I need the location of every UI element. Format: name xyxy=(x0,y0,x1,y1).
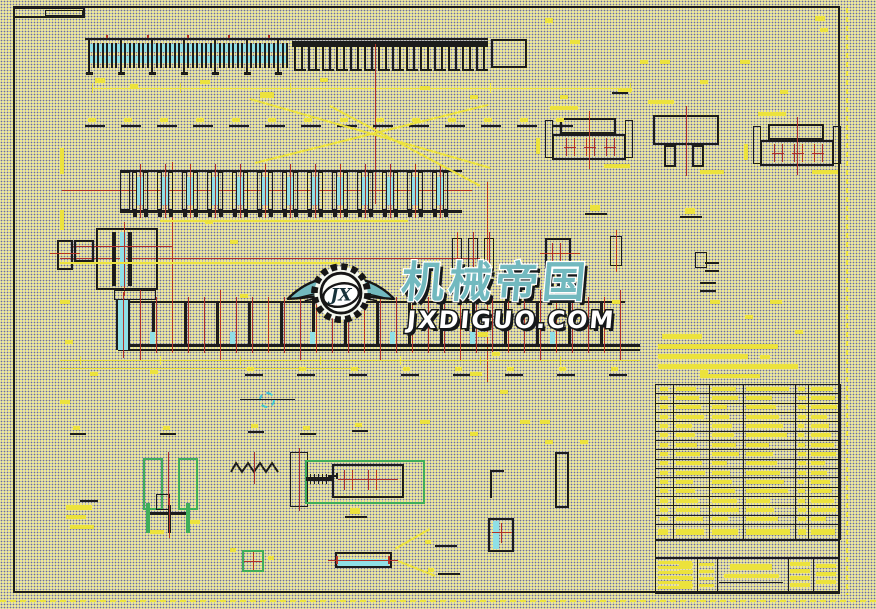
line xyxy=(233,213,237,217)
dimension-mark xyxy=(790,576,810,580)
dimension-mark xyxy=(724,574,779,578)
line xyxy=(436,69,446,71)
line xyxy=(338,69,348,71)
shape xyxy=(695,252,707,268)
title-block-text xyxy=(658,566,692,569)
top-strip-roller xyxy=(156,43,158,68)
top-strip-roller xyxy=(147,43,149,68)
section-dash xyxy=(245,374,263,376)
section-dash xyxy=(481,125,501,127)
table-cell-text xyxy=(676,517,703,521)
dimension-mark xyxy=(580,440,588,444)
top-strip-roller xyxy=(315,47,317,71)
roller xyxy=(293,172,298,210)
top-strip-roller xyxy=(133,43,135,68)
line xyxy=(169,213,173,217)
dimension-mark xyxy=(611,367,618,371)
table-grid xyxy=(655,440,840,441)
table-cell-text xyxy=(712,405,727,409)
shape xyxy=(57,240,73,270)
dimension-mark xyxy=(60,400,70,404)
section-dash xyxy=(409,125,429,127)
table-cell-text xyxy=(660,489,668,493)
centerline xyxy=(604,147,616,148)
line xyxy=(705,262,719,264)
centerline xyxy=(388,556,390,564)
section-dash xyxy=(349,374,367,376)
dimension-mark xyxy=(60,148,64,174)
top-strip-roller xyxy=(441,47,443,71)
roller xyxy=(318,172,323,210)
centerline xyxy=(812,153,824,154)
dimension-mark xyxy=(520,420,530,424)
top-strip-roller xyxy=(241,43,243,68)
line xyxy=(310,474,311,484)
table-cell-text xyxy=(798,480,804,484)
dimension-mark xyxy=(230,240,238,244)
top-strip-roller xyxy=(178,43,180,68)
section-dash xyxy=(373,125,393,127)
table-grid xyxy=(795,384,796,540)
dimension-mark xyxy=(745,315,753,319)
line xyxy=(795,524,796,540)
section-dash xyxy=(352,430,368,432)
line xyxy=(294,213,298,217)
top-strip-roller xyxy=(259,43,261,68)
left-drive-assembly xyxy=(96,228,158,290)
top-strip-roller xyxy=(448,47,450,71)
table-cell-text xyxy=(676,471,705,475)
line xyxy=(86,72,93,75)
table-cell-text xyxy=(712,517,728,521)
table-cell-text xyxy=(798,489,805,493)
table-cell-text xyxy=(660,387,668,391)
table-cell-text xyxy=(676,499,698,503)
section-dash xyxy=(301,125,321,127)
table-cell-text xyxy=(660,480,668,484)
line xyxy=(310,69,320,71)
dimension-mark xyxy=(815,16,825,21)
centerline xyxy=(376,470,377,490)
top-strip-roller xyxy=(322,47,324,71)
leader-line xyxy=(330,105,481,187)
table-cell-text xyxy=(676,433,695,437)
centerline xyxy=(106,35,108,38)
centerline xyxy=(792,153,804,154)
line xyxy=(358,213,362,217)
roller xyxy=(443,172,448,210)
table-cell-text xyxy=(676,508,700,512)
table-grid xyxy=(655,449,840,450)
centerline xyxy=(50,253,80,254)
dimension-mark xyxy=(66,505,92,510)
top-strip-roller xyxy=(196,43,198,68)
centerline xyxy=(265,164,266,218)
top-strip-end-box xyxy=(491,39,527,68)
table-header-text xyxy=(676,529,704,535)
dimension-mark xyxy=(699,570,714,573)
centerline xyxy=(220,290,221,360)
table-cell-text xyxy=(746,471,780,475)
shape xyxy=(146,503,150,533)
table-cell-text xyxy=(712,452,739,456)
dimension-mark xyxy=(470,372,482,376)
top-strip-roller xyxy=(294,47,296,71)
top-strip-roller xyxy=(476,47,478,71)
table-cell-text xyxy=(676,489,695,493)
table-cell-text xyxy=(712,471,730,475)
dimension-line xyxy=(92,88,632,89)
dimension-mark xyxy=(425,540,431,544)
table-header-text xyxy=(746,529,790,535)
centerline xyxy=(564,147,576,148)
dimension-mark xyxy=(770,300,782,304)
table-cell-text xyxy=(660,499,668,503)
shape xyxy=(692,145,704,167)
section-dash xyxy=(445,125,465,127)
top-strip-roller xyxy=(371,47,373,71)
line xyxy=(408,213,412,217)
dimension-mark xyxy=(60,368,360,369)
dimension-mark xyxy=(65,340,73,344)
centerline xyxy=(365,164,366,218)
table-cell-text xyxy=(798,499,805,503)
centerline xyxy=(338,479,398,480)
table-cell-text xyxy=(746,489,788,493)
dimension-mark xyxy=(73,426,80,430)
line xyxy=(840,524,841,540)
frame-border-top xyxy=(13,6,840,8)
top-strip-roller xyxy=(343,47,345,71)
table-cell-text xyxy=(660,396,668,400)
centerline xyxy=(352,470,353,490)
line xyxy=(673,524,674,540)
line xyxy=(244,72,251,75)
line xyxy=(128,300,130,350)
centerline xyxy=(188,297,189,353)
dimension-mark xyxy=(490,83,491,93)
top-strip-roller xyxy=(462,47,464,71)
datum-target-circle xyxy=(259,392,275,408)
dimension-mark xyxy=(60,210,64,230)
table-cell-text xyxy=(660,517,668,521)
dimension-mark xyxy=(790,562,810,566)
top-strip-roller xyxy=(223,43,225,68)
line xyxy=(655,524,656,540)
roller xyxy=(143,172,148,210)
dimension-mark xyxy=(420,86,430,90)
line xyxy=(333,213,337,217)
centerline xyxy=(501,523,502,543)
roller xyxy=(418,172,423,210)
line xyxy=(394,213,398,217)
dimension-mark xyxy=(428,568,434,572)
table-cell-text xyxy=(746,433,787,437)
leader-line xyxy=(435,545,457,547)
table-cell-text xyxy=(811,424,829,428)
roller xyxy=(168,172,173,210)
top-strip-roller xyxy=(97,43,99,68)
table-grid xyxy=(655,403,840,404)
dimension-mark xyxy=(400,356,401,365)
line xyxy=(244,213,248,217)
leader-line xyxy=(438,573,460,575)
centerline xyxy=(368,470,369,490)
note-text-line xyxy=(658,354,748,359)
centerline xyxy=(169,498,170,538)
line xyxy=(383,213,387,217)
line xyxy=(705,270,719,272)
centerline xyxy=(584,147,596,148)
table-cell-text xyxy=(811,517,826,521)
table-cell-text xyxy=(798,517,806,521)
section-dash xyxy=(557,374,575,376)
table-grid xyxy=(808,384,809,540)
dimension-mark xyxy=(470,95,478,99)
top-strip-roller xyxy=(129,43,131,68)
leader-line xyxy=(255,104,488,164)
centerline xyxy=(299,448,300,511)
line xyxy=(490,470,504,472)
top-strip-roller xyxy=(336,47,338,71)
table-cell-text xyxy=(798,396,806,400)
table-grid xyxy=(655,412,840,413)
top-strip-roller xyxy=(106,43,108,68)
dimension-mark xyxy=(355,423,362,427)
top-strip-roller xyxy=(250,43,252,68)
dimension-mark xyxy=(470,432,478,436)
table-cell-text xyxy=(712,415,729,419)
table-cell-text xyxy=(746,405,776,409)
dimension-mark xyxy=(507,367,514,371)
dimension-mark xyxy=(604,164,630,168)
table-cell-text xyxy=(746,508,774,512)
table-cell-text xyxy=(798,387,805,391)
top-strip-roller xyxy=(102,43,104,68)
plate-detail xyxy=(555,452,569,508)
section-dash xyxy=(453,374,471,376)
top-strip-roller xyxy=(273,43,275,68)
dimension-mark xyxy=(160,356,161,365)
dimension-mark xyxy=(299,367,306,371)
centerline xyxy=(336,556,338,564)
top-strip-roller xyxy=(228,43,230,68)
top-strip-roller xyxy=(413,47,415,71)
dimension-mark xyxy=(60,300,70,304)
top-strip-roller xyxy=(232,43,234,68)
table-cell-text xyxy=(811,480,830,484)
centerline xyxy=(147,35,149,38)
line xyxy=(450,69,460,71)
top-strip-roller xyxy=(350,47,352,71)
dimension-mark xyxy=(90,372,98,376)
table-cell-text xyxy=(811,387,833,391)
dimension-mark xyxy=(760,355,770,359)
highlight xyxy=(120,232,126,286)
dimension-mark xyxy=(130,84,138,88)
note-text-line xyxy=(700,374,760,378)
centerline xyxy=(772,153,784,154)
table-cell-text xyxy=(811,396,835,400)
dimension-mark xyxy=(679,563,693,566)
top-strip-roller xyxy=(160,43,162,68)
table-cell-text xyxy=(811,415,827,419)
centerline xyxy=(344,470,345,490)
centerline xyxy=(797,117,798,175)
top-strip-roller xyxy=(392,47,394,71)
dimension-mark xyxy=(163,426,170,430)
line xyxy=(194,213,198,217)
highlight xyxy=(230,332,235,344)
table-cell-text xyxy=(798,433,804,437)
table-cell-text xyxy=(712,489,735,493)
dimension-mark xyxy=(80,356,81,365)
line xyxy=(296,69,306,71)
line xyxy=(208,213,212,217)
top-strip-roller xyxy=(329,47,331,71)
rail2-roller xyxy=(248,303,251,345)
table-cell-text xyxy=(712,508,739,512)
table-grid xyxy=(655,515,840,516)
table-grid xyxy=(743,384,744,540)
dimension-mark xyxy=(816,572,836,576)
rail2-roller xyxy=(184,303,187,345)
centerline xyxy=(123,292,124,358)
dimension-mark xyxy=(556,118,564,122)
rail2-roller xyxy=(280,303,283,345)
dimension-mark xyxy=(540,420,550,424)
dimension-mark xyxy=(816,564,836,568)
centerline xyxy=(686,106,687,176)
title-block-grid xyxy=(697,558,698,594)
view-label xyxy=(685,208,695,214)
dimension-mark xyxy=(640,60,648,64)
roller xyxy=(243,172,248,210)
title-block-grid xyxy=(813,558,814,594)
centerline xyxy=(240,164,241,218)
dimension-mark xyxy=(660,60,670,64)
dimension-mark xyxy=(480,356,481,365)
roller xyxy=(268,172,273,210)
line xyxy=(116,300,118,350)
centerline xyxy=(375,44,376,204)
line xyxy=(258,213,262,217)
centerline xyxy=(340,164,341,218)
line xyxy=(743,524,744,540)
dimension-mark xyxy=(699,584,714,587)
top-strip-roller xyxy=(268,43,270,68)
table-cell-text xyxy=(746,517,778,521)
line xyxy=(112,232,116,286)
line xyxy=(478,69,488,71)
line xyxy=(612,92,628,94)
table-grid xyxy=(655,384,656,540)
shape xyxy=(625,120,633,158)
centerline xyxy=(204,297,205,353)
dimension-mark xyxy=(180,83,181,93)
dimension-mark xyxy=(200,80,210,84)
table-cell-text xyxy=(676,480,693,484)
line xyxy=(275,72,282,75)
dimension-mark xyxy=(88,118,96,122)
line xyxy=(308,213,312,217)
dimension-mark xyxy=(500,390,508,394)
line xyxy=(149,72,156,75)
line xyxy=(336,473,338,479)
rail1-end-cap xyxy=(120,172,130,210)
top-strip-roller xyxy=(219,43,221,68)
table-grid xyxy=(655,496,840,497)
line xyxy=(719,582,783,583)
dimension-mark xyxy=(150,370,158,374)
dimension-mark xyxy=(196,118,204,122)
table-cell-text xyxy=(811,499,834,503)
dimension-mark xyxy=(679,584,693,587)
gear-wings-logo-icon: JX xyxy=(284,253,398,339)
dimension-mark xyxy=(758,112,786,116)
shape xyxy=(753,126,761,164)
section-dash xyxy=(193,125,213,127)
top-strip-roller xyxy=(88,40,90,74)
table-cell-text xyxy=(676,424,692,428)
table-cell-text xyxy=(712,396,738,400)
table-grid xyxy=(673,384,674,540)
dimension-mark xyxy=(320,78,328,82)
top-strip-roller xyxy=(385,47,387,71)
dimension-mark xyxy=(240,294,248,298)
line xyxy=(133,213,137,217)
line xyxy=(700,290,716,292)
top-strip-roller xyxy=(165,43,167,68)
table-cell-text xyxy=(811,443,834,447)
line xyxy=(219,213,223,217)
table-cell-text xyxy=(798,452,806,456)
dimension-mark xyxy=(612,300,620,304)
dimension-mark xyxy=(66,515,86,519)
table-cell-text xyxy=(746,480,784,484)
watermark: JX 机械帝国 机械帝国 JXDIGUO.COM JXDIGUO.COM xyxy=(284,252,606,340)
table-cell-text xyxy=(712,443,736,447)
dimension-mark xyxy=(247,367,254,371)
table-cell-text xyxy=(660,433,668,437)
line xyxy=(352,69,362,71)
shape xyxy=(186,503,190,533)
top-strip-roller xyxy=(237,43,239,68)
shape xyxy=(74,240,94,262)
line xyxy=(808,524,809,540)
note-text-line xyxy=(658,364,798,369)
dimension-mark xyxy=(790,583,810,587)
centerline xyxy=(589,111,590,169)
section-dash xyxy=(505,374,523,376)
frame-border-left xyxy=(13,6,15,593)
dimension-mark xyxy=(492,352,500,356)
top-strip-roller xyxy=(124,43,126,68)
dimension-mark xyxy=(820,28,828,32)
top-strip-roller xyxy=(255,43,257,68)
dimension-mark xyxy=(710,300,720,304)
table-cell-text xyxy=(660,452,668,456)
table-cell-text xyxy=(676,443,697,447)
table-grid xyxy=(655,421,840,422)
centerline xyxy=(236,297,237,353)
top-strip-roller xyxy=(286,43,288,68)
centerline xyxy=(315,164,316,218)
centerline xyxy=(190,164,191,218)
dimension-mark xyxy=(376,118,384,122)
dimension-mark xyxy=(251,424,258,428)
table-cell-text xyxy=(660,508,668,512)
